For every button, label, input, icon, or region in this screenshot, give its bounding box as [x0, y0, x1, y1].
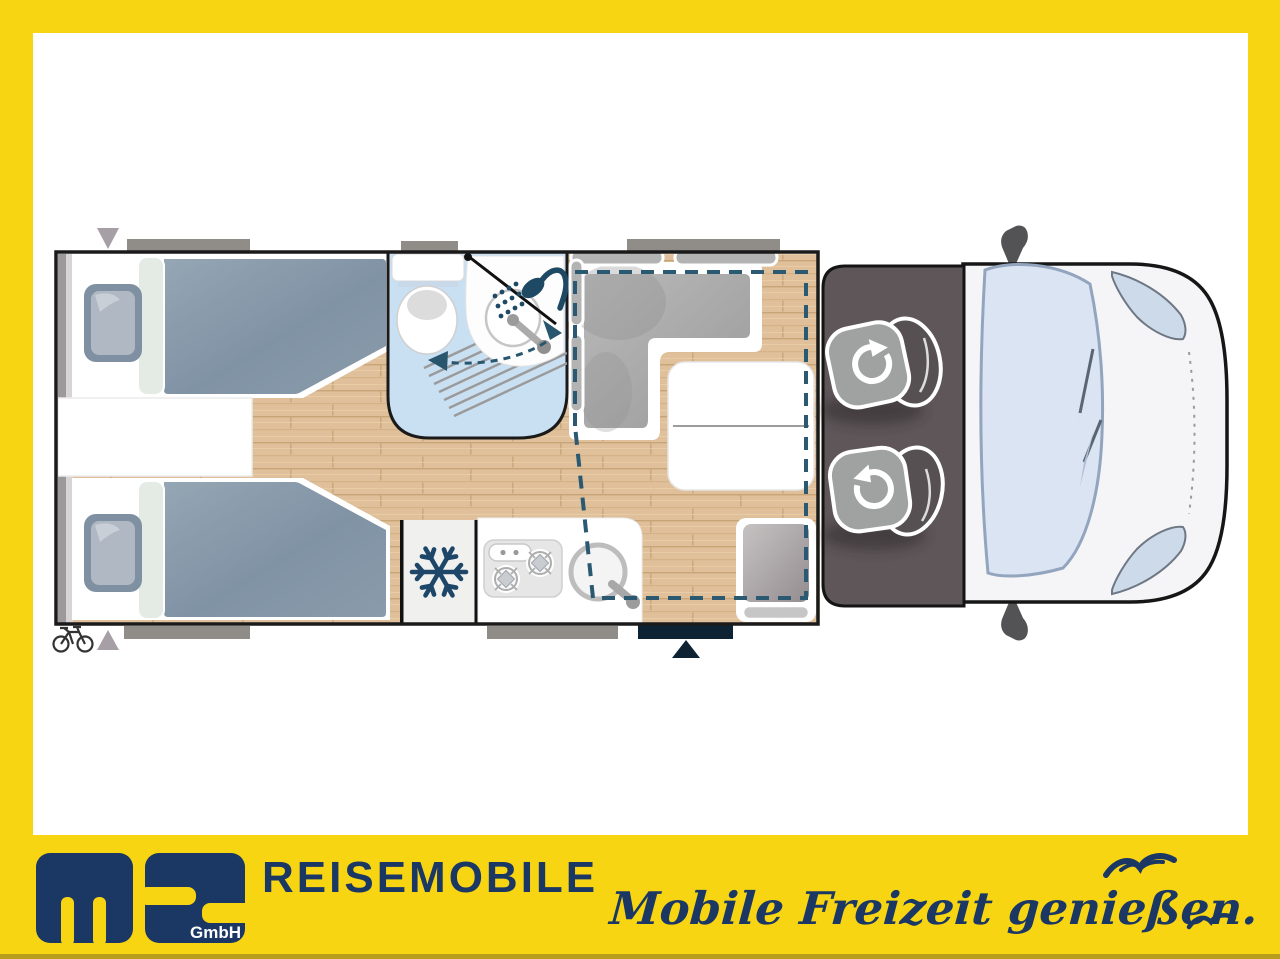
entrance-arrow-icon [672, 640, 700, 658]
seagull-icons [1090, 845, 1280, 955]
between-beds-cabinet [58, 398, 252, 476]
frame-right [1248, 0, 1280, 835]
ms-logo: GmbH [34, 851, 246, 946]
rear-marker-icon [97, 228, 119, 249]
van-front [963, 226, 1227, 641]
dinette-table [668, 362, 814, 490]
frame-left [0, 0, 33, 835]
entry-door-step [638, 625, 733, 639]
bathroom [388, 252, 572, 438]
seagull-icon-small [1189, 915, 1234, 927]
pillow [84, 284, 142, 362]
pillow [84, 514, 142, 592]
bottom-edge-line [0, 954, 1280, 959]
bicycle-icon [54, 627, 93, 652]
kitchen [400, 518, 642, 624]
motorhome-floorplan [0, 0, 1280, 835]
windshield [981, 264, 1103, 576]
cab-floor [823, 266, 964, 606]
logo-suffix: GmbH [190, 923, 241, 942]
mirror-top [1001, 226, 1028, 266]
mirror-bottom [1001, 600, 1028, 640]
stove [484, 540, 562, 597]
seagull-icon-large [1106, 856, 1174, 875]
wordmark: REISEMOBILE [262, 856, 598, 900]
rear-marker-icon-bottom [97, 630, 119, 650]
frame-top [0, 0, 1280, 33]
cab [820, 266, 964, 606]
